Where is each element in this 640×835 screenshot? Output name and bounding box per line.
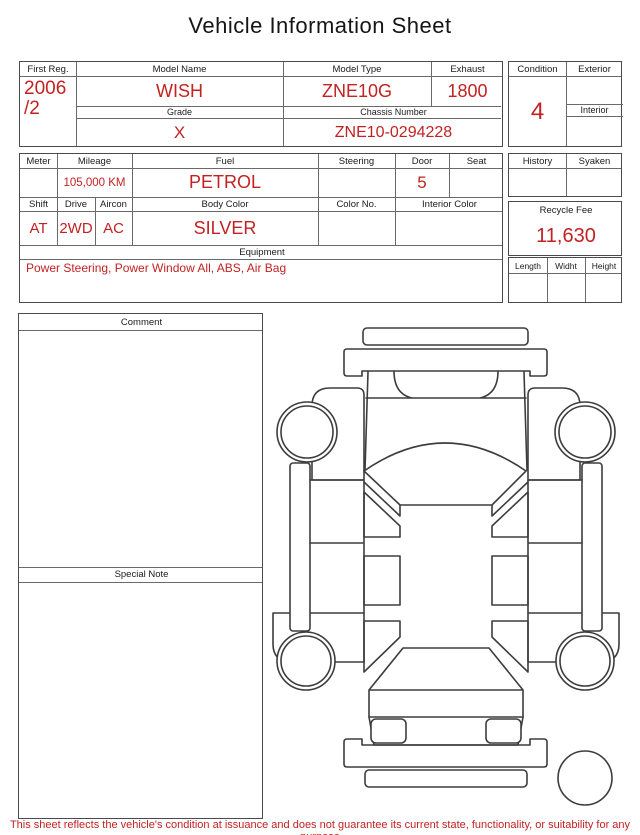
steering-label: Steering (318, 154, 395, 168)
interior-label: Interior (566, 104, 623, 116)
shift-value: AT (20, 211, 57, 245)
height-label: Height (585, 258, 623, 273)
grade-value: X (76, 118, 283, 148)
seat-label: Seat (449, 154, 504, 168)
comment-text (23, 332, 259, 564)
aircon-label: Aircon (95, 197, 132, 211)
seat-value (449, 168, 504, 197)
grid-line (20, 259, 502, 260)
color-no-value (318, 211, 395, 245)
condition-label: Condition (509, 62, 566, 76)
chassis-number-value: ZNE10-0294228 (283, 118, 504, 148)
condition-value: 4 (509, 76, 566, 148)
chassis-number-label: Chassis Number (283, 106, 504, 118)
hood-sides (365, 372, 527, 470)
color-no-label: Color No. (318, 197, 395, 211)
quarter-window-left (364, 621, 400, 672)
table-details: Meter Mileage Fuel Steering Door Seat 10… (19, 153, 503, 303)
side-sill-right (582, 463, 602, 631)
table-registration: First Reg. 2006 /2 Model Name WISH Model… (19, 61, 503, 147)
tail-lamp-right (486, 719, 521, 743)
steering-value (318, 168, 395, 197)
syaken-label: Syaken (566, 154, 623, 168)
recycle-fee-value: 11,630 (509, 219, 623, 253)
history-box: History Syaken (508, 153, 622, 197)
cowl-and-headlights (366, 371, 526, 398)
condition-box: Condition 4 Exterior Interior (508, 61, 622, 147)
grade-label: Grade (76, 106, 283, 118)
equipment-label: Equipment (20, 245, 504, 259)
vehicle-information-sheet: Vehicle Information Sheet First Reg. 200… (0, 0, 640, 835)
grid-line (19, 582, 262, 583)
length-label: Length (509, 258, 547, 273)
model-name-value: WISH (76, 76, 283, 106)
a-pillar-bands (364, 482, 528, 516)
wheel-front-left (277, 402, 337, 462)
wheel-front-right (555, 402, 615, 462)
aircon-value: AC (95, 211, 132, 245)
disclaimer-text: This sheet reflects the vehicle's condit… (0, 819, 640, 835)
recycle-fee-label: Recycle Fee (509, 204, 623, 217)
rear-window (369, 648, 523, 717)
front-garnish (363, 328, 528, 345)
fuel-value: PETROL (132, 168, 318, 197)
drive-value: 2WD (57, 211, 95, 245)
meter-value (20, 168, 57, 197)
width-label: Widht (547, 258, 585, 273)
body-color-value: SILVER (132, 211, 318, 245)
exterior-value (566, 76, 623, 104)
meter-label: Meter (20, 154, 57, 168)
exhaust-label: Exhaust (431, 62, 504, 76)
exhaust-value: 1800 (431, 76, 504, 106)
door-seams-left (310, 480, 364, 613)
model-name-label: Model Name (76, 62, 283, 76)
page-title: Vehicle Information Sheet (0, 13, 640, 39)
front-bumper (344, 349, 547, 376)
mileage-label: Mileage (57, 154, 132, 168)
rear-door-window-right (492, 556, 528, 605)
side-sill-left (290, 463, 310, 631)
special-note-text (23, 584, 259, 814)
car-top-view-diagram (265, 318, 640, 813)
comment-label: Comment (19, 316, 264, 329)
interior-color-label: Interior Color (395, 197, 504, 211)
exterior-label: Exterior (566, 62, 623, 76)
spare-tire (558, 751, 612, 805)
history-label: History (509, 154, 566, 168)
windshield (364, 443, 526, 505)
model-type-value: ZNE10G (283, 76, 431, 106)
drive-label: Drive (57, 197, 95, 211)
grid-line (509, 273, 621, 274)
quarter-window-right (492, 621, 528, 672)
door-value: 5 (395, 168, 449, 197)
rear-door-window-left (364, 556, 400, 605)
recycle-fee-box: Recycle Fee 11,630 (508, 201, 622, 256)
special-note-label: Special Note (19, 568, 264, 581)
wheel-rear-left (277, 632, 335, 690)
interior-value (566, 116, 623, 148)
rear-garnish (365, 770, 527, 787)
interior-color-value (395, 211, 504, 245)
grid-line (509, 168, 621, 169)
fuel-label: Fuel (132, 154, 318, 168)
first-reg-month: /2 (24, 99, 40, 119)
comment-box: Comment Special Note (18, 313, 263, 819)
dimensions-box: Length Widht Height (508, 257, 622, 303)
tail-lamp-left (371, 719, 406, 743)
mileage-value: 105,000 KM (57, 168, 132, 197)
body-color-label: Body Color (132, 197, 318, 211)
equipment-value: Power Steering, Power Window All, ABS, A… (26, 261, 496, 275)
first-reg-year: 2006 (24, 79, 66, 99)
wheel-rear-right (556, 632, 614, 690)
shift-label: Shift (20, 197, 57, 211)
first-reg-value: 2006 /2 (20, 76, 76, 148)
door-label: Door (395, 154, 449, 168)
model-type-label: Model Type (283, 62, 431, 76)
first-reg-label: First Reg. (20, 62, 76, 76)
door-seams-right (528, 480, 582, 613)
grid-line (19, 330, 262, 331)
